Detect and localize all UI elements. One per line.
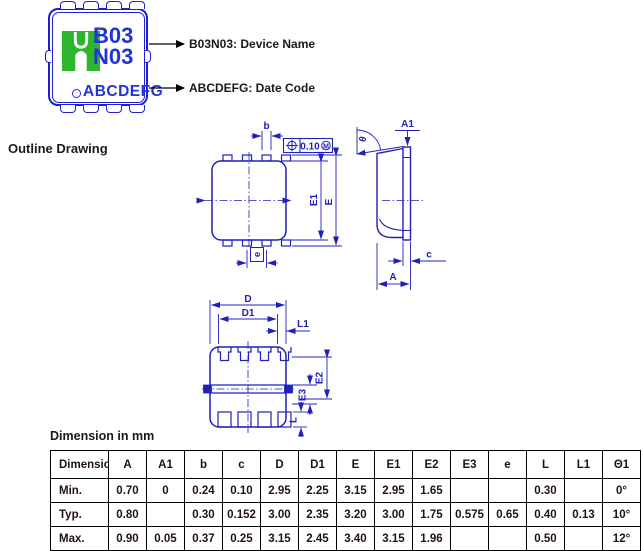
table-cell: 0.40 [527,503,565,527]
table-cell: 0° [603,479,641,503]
table-header-cell: D [261,451,299,479]
pin1-indicator-icon [72,89,81,98]
table-cell: 0.10 [223,479,261,503]
mmc-icon: M [322,141,331,150]
pin-tab [106,1,122,9]
pin-tab [83,1,99,9]
dim-label-L: L [289,417,300,423]
top-view: b 0.10 M E1 [205,121,342,268]
table-cell [147,503,185,527]
table-cell: 1.65 [413,479,451,503]
table-cell: 0.50 [527,527,565,551]
table-head: DimensionAA1bcDD1EE1E2E3eLL1Θ1 [51,451,641,479]
table-cell: 0.24 [185,479,223,503]
table-body: Min.0.7000.240.102.952.253.152.951.650.3… [51,479,641,551]
table-header-cell: A1 [147,451,185,479]
callout-arrows [146,36,190,94]
table-cell: 0.575 [451,503,489,527]
table-header-cell: c [223,451,261,479]
row-label-cell: Min. [51,479,109,503]
table-cell: 2.25 [299,479,337,503]
dim-label-e: e [252,252,263,257]
table-header-cell: b [185,451,223,479]
dim-label-theta: θ [358,135,370,143]
table-header-cell: E1 [375,451,413,479]
table-cell: 3.15 [261,527,299,551]
table-cell: 0.37 [185,527,223,551]
pin-tab [83,105,99,113]
pin-tab [106,105,122,113]
pin-tab [60,105,76,113]
table-cell [451,479,489,503]
lead-profile [403,147,411,240]
table-cell: 0.30 [527,479,565,503]
table-cell: 2.95 [261,479,299,503]
dim-label-E3: E3 [298,388,309,401]
package-body-side [377,149,403,238]
dim-label-E1: E1 [309,193,320,206]
pin-tab [129,1,145,9]
table-cell: 3.00 [375,503,413,527]
dimension-table: DimensionAA1bcDD1EE1E2E3eLL1Θ1 Min.0.700… [50,450,641,551]
table-cell: 0.80 [109,503,147,527]
table-cell: 1.75 [413,503,451,527]
table-cell: 3.40 [337,527,375,551]
table-header-cell: E2 [413,451,451,479]
table-cell: 3.15 [337,479,375,503]
table-cell: 12° [603,527,641,551]
table-cell: 0.30 [185,503,223,527]
dim-label-c: c [426,250,432,261]
tolerance-value: 0.10 [300,142,320,153]
table-cell: 0.13 [565,503,603,527]
row-label-cell: Typ. [51,503,109,527]
table-cell: 3.20 [337,503,375,527]
table-cell: 0.70 [109,479,147,503]
package-marking-diagram: B03 N03 ABCDEFG [48,8,148,106]
table-cell: 3.15 [375,527,413,551]
table-header-cell: E3 [451,451,489,479]
table-cell: 3.00 [261,503,299,527]
table-cell: 2.35 [299,503,337,527]
side-bump [45,50,51,63]
marking-line2: N03 [93,46,133,67]
table-header-cell: Dimension [51,451,109,479]
tolerance-frame: 0.10 M [284,139,333,153]
table-header-cell: L1 [565,451,603,479]
table-header-cell: E [337,451,375,479]
device-name-label: B03N03: Device Name [189,37,315,51]
dim-label-A: A [389,272,396,283]
table-cell: 1.96 [413,527,451,551]
table-cell [489,527,527,551]
dim-label-E: E [324,198,335,205]
table-cell [451,527,489,551]
table-header-cell: D1 [299,451,337,479]
table-cell [489,479,527,503]
table-row: Min.0.7000.240.102.952.253.152.951.650.3… [51,479,641,503]
dim-label-L1: L1 [297,319,309,330]
bottom-view: D D1 L1 E2 E3 [202,294,332,437]
row-label-cell: Max. [51,527,109,551]
dim-label-D: D [244,294,251,305]
table-cell: 2.95 [375,479,413,503]
table-header-cell: A [109,451,147,479]
dim-label-b: b [263,121,269,132]
table-header-cell: Θ1 [603,451,641,479]
table-cell [565,479,603,503]
marking-line1: B03 [93,25,133,46]
table-cell: 0 [147,479,185,503]
table-cell [565,527,603,551]
table-cell: 0.152 [223,503,261,527]
svg-text:M: M [323,144,329,151]
table-cell: 2.45 [299,527,337,551]
dim-label-D1: D1 [242,308,255,319]
table-header-cell: e [489,451,527,479]
outline-drawing-title: Outline Drawing [8,141,108,156]
table-cell: 10° [603,503,641,527]
position-tolerance-icon [286,140,298,152]
table-cell: 0.25 [223,527,261,551]
table-cell: 0.05 [147,527,185,551]
table-cell: 0.90 [109,527,147,551]
pin-tab [129,105,145,113]
table-caption: Dimension in mm [50,429,154,443]
table-cell: 0.65 [489,503,527,527]
table-header-cell: L [527,451,565,479]
pin-tab [60,1,76,9]
datasheet-page: B03 N03 ABCDEFG B03N03: Device Name ABCD… [0,0,643,551]
dim-label-A1: A1 [401,119,414,130]
outline-drawing: b 0.10 M E1 [195,110,480,450]
table-row: Max.0.900.050.370.253.152.453.403.151.96… [51,527,641,551]
device-marking: B03 N03 [93,25,133,67]
table-row: Typ.0.800.300.1523.002.353.203.001.750.5… [51,503,641,527]
date-code-label: ABCDEFG: Date Code [189,81,315,95]
dim-label-E2: E2 [315,371,326,384]
side-view: θ A1 c A [357,119,446,290]
